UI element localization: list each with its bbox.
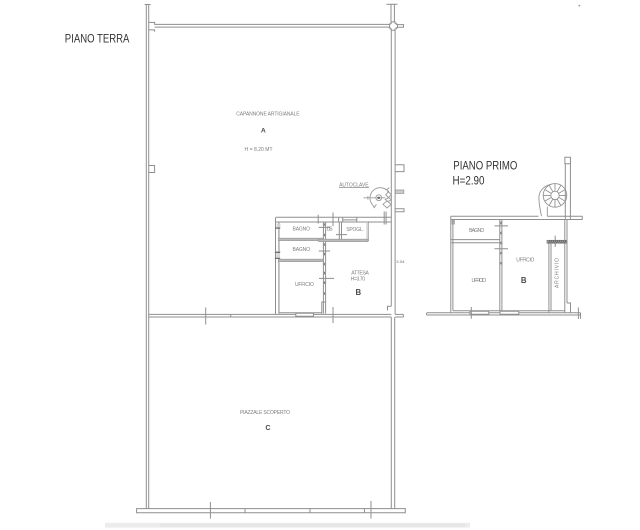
- svg-text:BAGNO: BAGNO: [293, 247, 311, 253]
- svg-text:BAGNO: BAGNO: [469, 228, 484, 234]
- svg-text:ARCHIVIO: ARCHIVIO: [555, 258, 561, 288]
- svg-text:B: B: [356, 288, 362, 297]
- svg-text:DIS: DIS: [327, 227, 333, 233]
- svg-text:C: C: [265, 423, 270, 432]
- svg-text:H = 8.20 MT: H = 8.20 MT: [245, 147, 273, 153]
- svg-text:UFFICIO: UFFICIO: [295, 282, 314, 288]
- svg-text:3.04: 3.04: [396, 259, 405, 264]
- svg-text:AUTOCLAVE: AUTOCLAVE: [339, 183, 369, 189]
- svg-text:A: A: [261, 128, 266, 135]
- svg-text:PIAZZALE SCOPERTO: PIAZZALE SCOPERTO: [240, 410, 290, 416]
- svg-text:UFFICIO: UFFICIO: [516, 258, 534, 264]
- svg-text:CAPANNONE ARTIGIANALE: CAPANNONE ARTIGIANALE: [236, 112, 300, 118]
- svg-text:PIANO PRIMO: PIANO PRIMO: [453, 161, 517, 173]
- svg-text:BAGNO: BAGNO: [293, 226, 311, 232]
- svg-text:H=2.90: H=2.90: [453, 175, 485, 187]
- svg-text:UFFICIO: UFFICIO: [472, 278, 487, 284]
- svg-text:SPOGL.: SPOGL.: [346, 227, 364, 233]
- svg-text:B: B: [521, 276, 527, 285]
- svg-text:PIANO TERRA: PIANO TERRA: [65, 34, 130, 46]
- svg-text:H=3.70: H=3.70: [351, 276, 365, 282]
